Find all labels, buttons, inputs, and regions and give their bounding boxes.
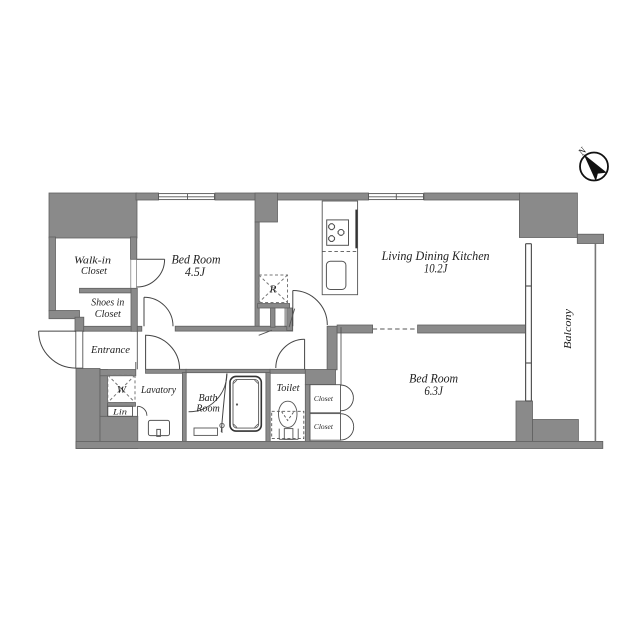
svg-text:Shoes in: Shoes in xyxy=(91,297,124,309)
svg-text:Balcony: Balcony xyxy=(562,309,574,349)
svg-text:Toilet: Toilet xyxy=(277,383,301,394)
svg-text:Lin: Lin xyxy=(112,407,127,417)
svg-text:Closet: Closet xyxy=(314,394,334,403)
svg-text:Room: Room xyxy=(195,403,220,414)
svg-text:Lavatory: Lavatory xyxy=(140,385,176,396)
svg-text:Bath: Bath xyxy=(199,393,218,404)
svg-text:Closet: Closet xyxy=(314,422,334,431)
svg-text:W: W xyxy=(117,384,127,396)
svg-text:Closet: Closet xyxy=(95,308,122,320)
svg-text:10.2J: 10.2J xyxy=(424,262,449,276)
svg-text:6.3J: 6.3J xyxy=(424,384,444,398)
svg-text:4.5J: 4.5J xyxy=(185,265,206,279)
svg-text:Entrance: Entrance xyxy=(90,344,130,356)
svg-text:R: R xyxy=(269,284,277,296)
svg-text:Closet: Closet xyxy=(81,265,108,277)
